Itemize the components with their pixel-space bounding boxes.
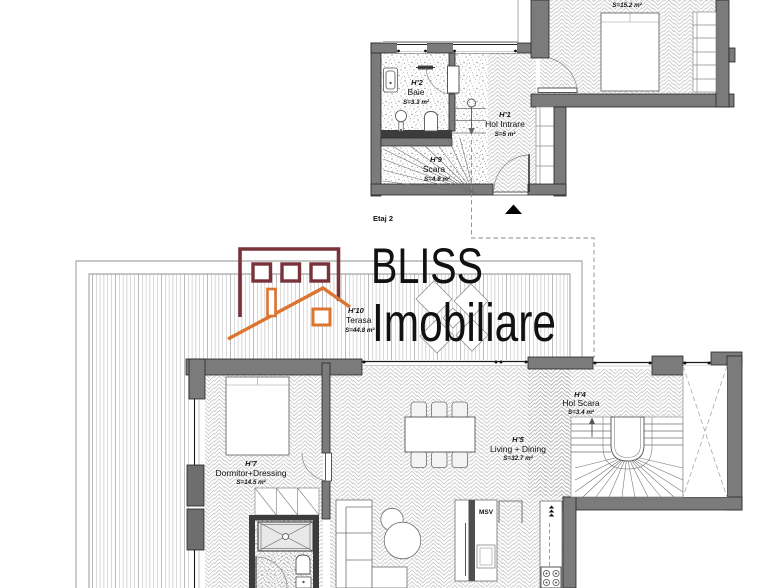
svg-text:S=14.5 m²: S=14.5 m² — [236, 479, 266, 486]
svg-text:H’1: H’1 — [499, 110, 511, 119]
svg-text:H’10: H’10 — [348, 306, 365, 315]
svg-text:Dormitor+Dressing: Dormitor+Dressing — [215, 468, 286, 478]
svg-text:Hol Intrare: Hol Intrare — [485, 119, 525, 129]
svg-text:S=44.8 m²: S=44.8 m² — [345, 327, 375, 334]
svg-text:Hol Scara: Hol Scara — [562, 398, 600, 408]
svg-text:H’5: H’5 — [512, 435, 525, 444]
svg-text:BLISS: BLISS — [371, 238, 483, 294]
svg-text:Etaj 2: Etaj 2 — [373, 214, 393, 223]
svg-text:Terasa: Terasa — [346, 315, 372, 325]
svg-text:MSV: MSV — [479, 509, 494, 516]
svg-text:Scara: Scara — [423, 164, 445, 174]
svg-text:S=3.4 m²: S=3.4 m² — [568, 409, 595, 416]
svg-text:S=3.3 m²: S=3.3 m² — [403, 99, 430, 106]
svg-text:Living + Dining: Living + Dining — [490, 444, 546, 454]
svg-text:S=32.7 m²: S=32.7 m² — [503, 455, 533, 462]
svg-text:H’9: H’9 — [430, 155, 443, 164]
svg-text:Baie: Baie — [407, 87, 424, 97]
svg-text:S=15.2 m²: S=15.2 m² — [612, 2, 642, 9]
svg-text:H’7: H’7 — [245, 459, 258, 468]
svg-text:Imobiliare: Imobiliare — [372, 293, 556, 353]
svg-text:S=4.9 m²: S=4.9 m² — [424, 176, 451, 183]
svg-text:S=5 m²: S=5 m² — [495, 131, 517, 138]
svg-text:H’2: H’2 — [411, 78, 424, 87]
